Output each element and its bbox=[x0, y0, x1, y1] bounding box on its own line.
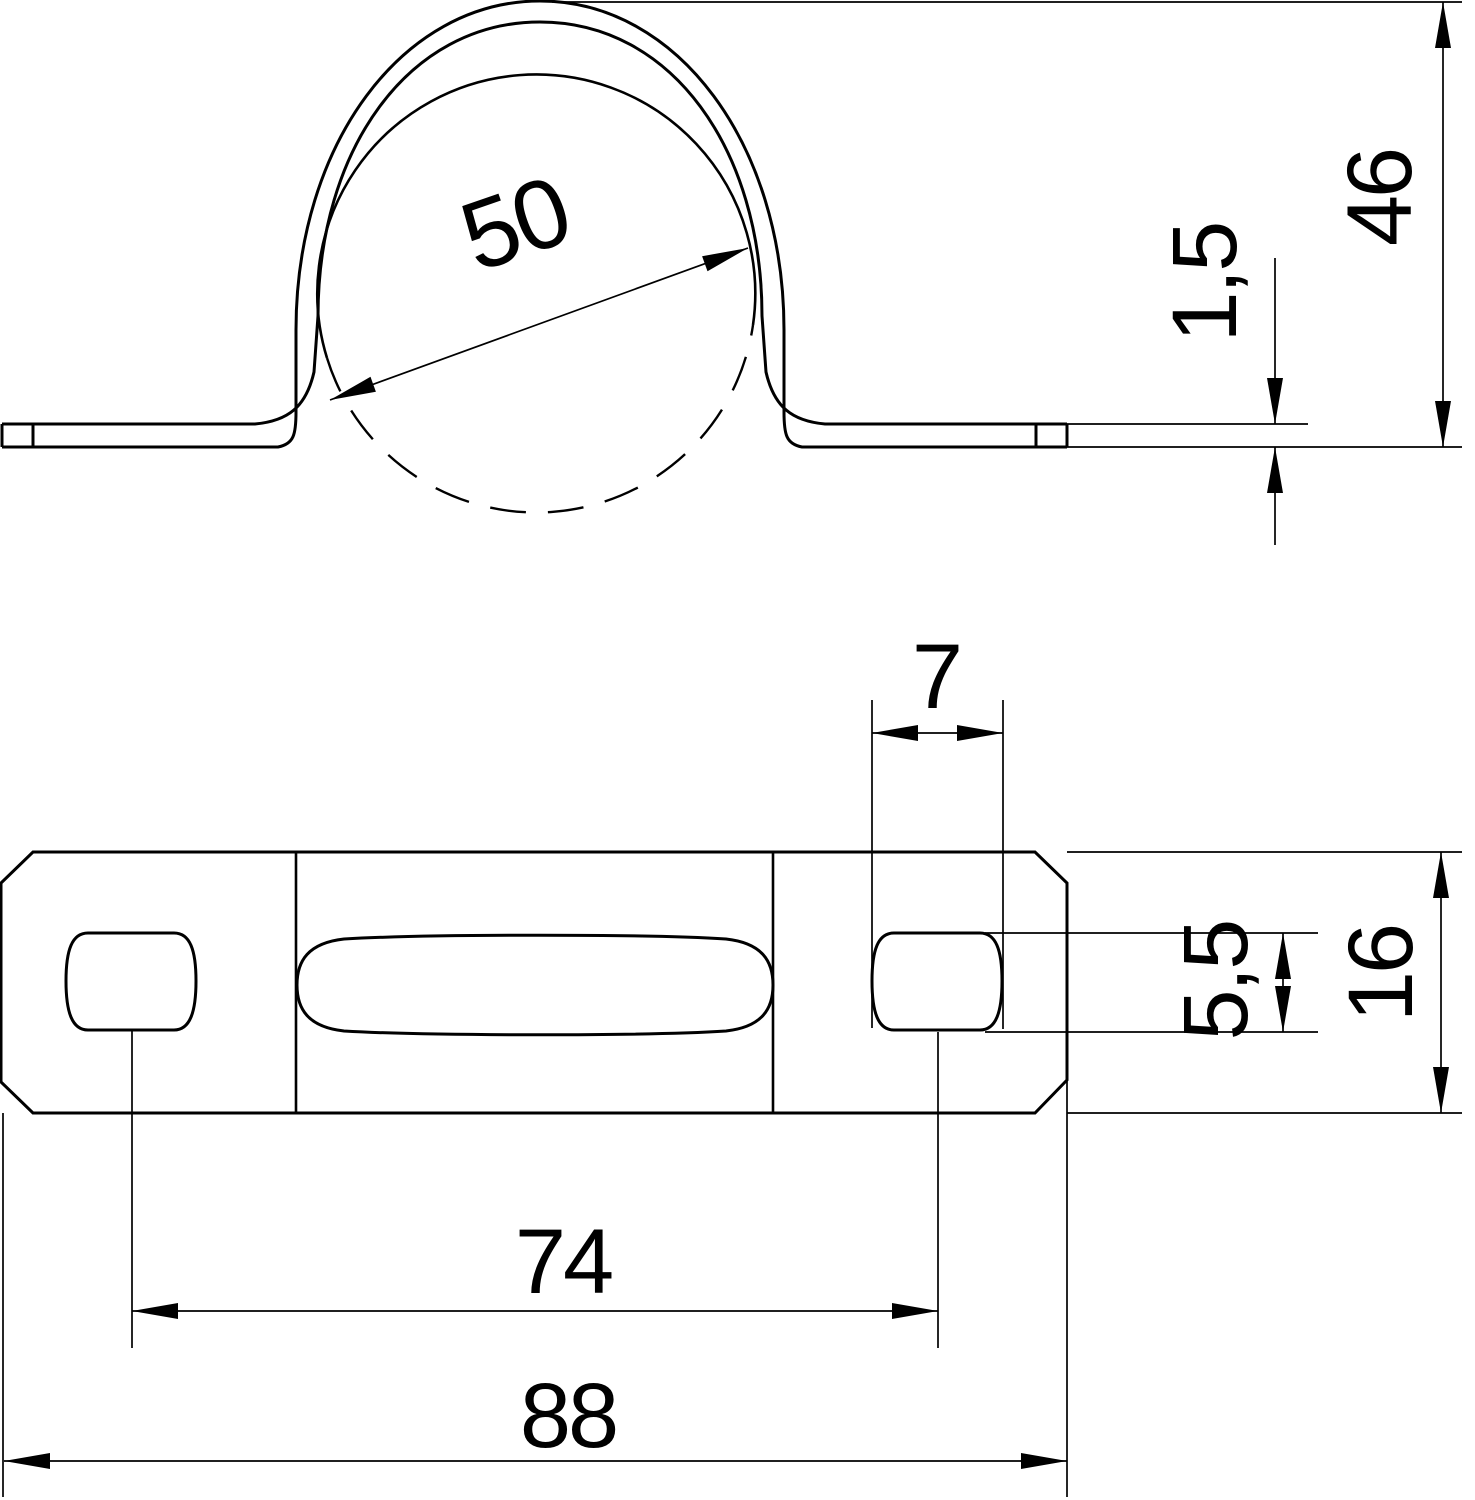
dim-hole-spacing: 74 bbox=[132, 1030, 938, 1348]
clamp-drawing-svg: 50 46 1,5 bbox=[0, 0, 1475, 1500]
left-screw-hole bbox=[66, 933, 196, 1030]
dim-value-46: 46 bbox=[1329, 150, 1431, 246]
arrowhead bbox=[330, 377, 376, 400]
arrowhead bbox=[1275, 986, 1291, 1032]
arrowhead bbox=[1435, 2, 1451, 48]
dim-value-1-5: 1,5 bbox=[1154, 224, 1256, 343]
dim-value-7: 7 bbox=[912, 626, 960, 728]
arrowhead bbox=[132, 1303, 178, 1319]
technical-drawing-page: 50 46 1,5 bbox=[0, 0, 1475, 1500]
arrowhead bbox=[1021, 1453, 1067, 1469]
plan-view: 7 5,5 16 74 bbox=[1, 626, 1462, 1497]
dim-overall-height: 46 bbox=[1329, 2, 1451, 447]
left-foot-end-face bbox=[2, 424, 33, 447]
arrowhead bbox=[1435, 401, 1451, 447]
dim-material-thickness: 1,5 bbox=[1154, 224, 1283, 545]
dim-value-16: 16 bbox=[1330, 926, 1432, 1022]
dim-value-5-5: 5,5 bbox=[1165, 922, 1267, 1041]
arrowhead bbox=[1433, 852, 1449, 898]
arrowhead bbox=[1433, 1067, 1449, 1113]
dim-hole-height: 5,5 bbox=[985, 922, 1318, 1041]
dim-hole-width: 7 bbox=[872, 626, 1003, 1029]
arrowhead bbox=[892, 1303, 938, 1319]
arrowhead bbox=[957, 725, 1003, 741]
side-view: 50 46 1,5 bbox=[2, 1, 1462, 545]
plate-outline bbox=[1, 852, 1067, 1113]
dim-value-50: 50 bbox=[448, 154, 583, 292]
arrowhead bbox=[1275, 933, 1291, 979]
dim-value-88: 88 bbox=[520, 1365, 616, 1467]
dim-value-74: 74 bbox=[515, 1211, 612, 1313]
arrowhead bbox=[1267, 447, 1283, 493]
right-screw-hole bbox=[872, 933, 1002, 1030]
arrowhead bbox=[4, 1453, 50, 1469]
right-foot-end-face bbox=[1036, 424, 1067, 447]
dim-pipe-diameter: 50 bbox=[330, 154, 748, 400]
arrowhead bbox=[702, 248, 748, 271]
arrowhead bbox=[1267, 378, 1283, 424]
center-slot bbox=[297, 935, 773, 1035]
pipe-circle-dashed bbox=[327, 325, 753, 512]
